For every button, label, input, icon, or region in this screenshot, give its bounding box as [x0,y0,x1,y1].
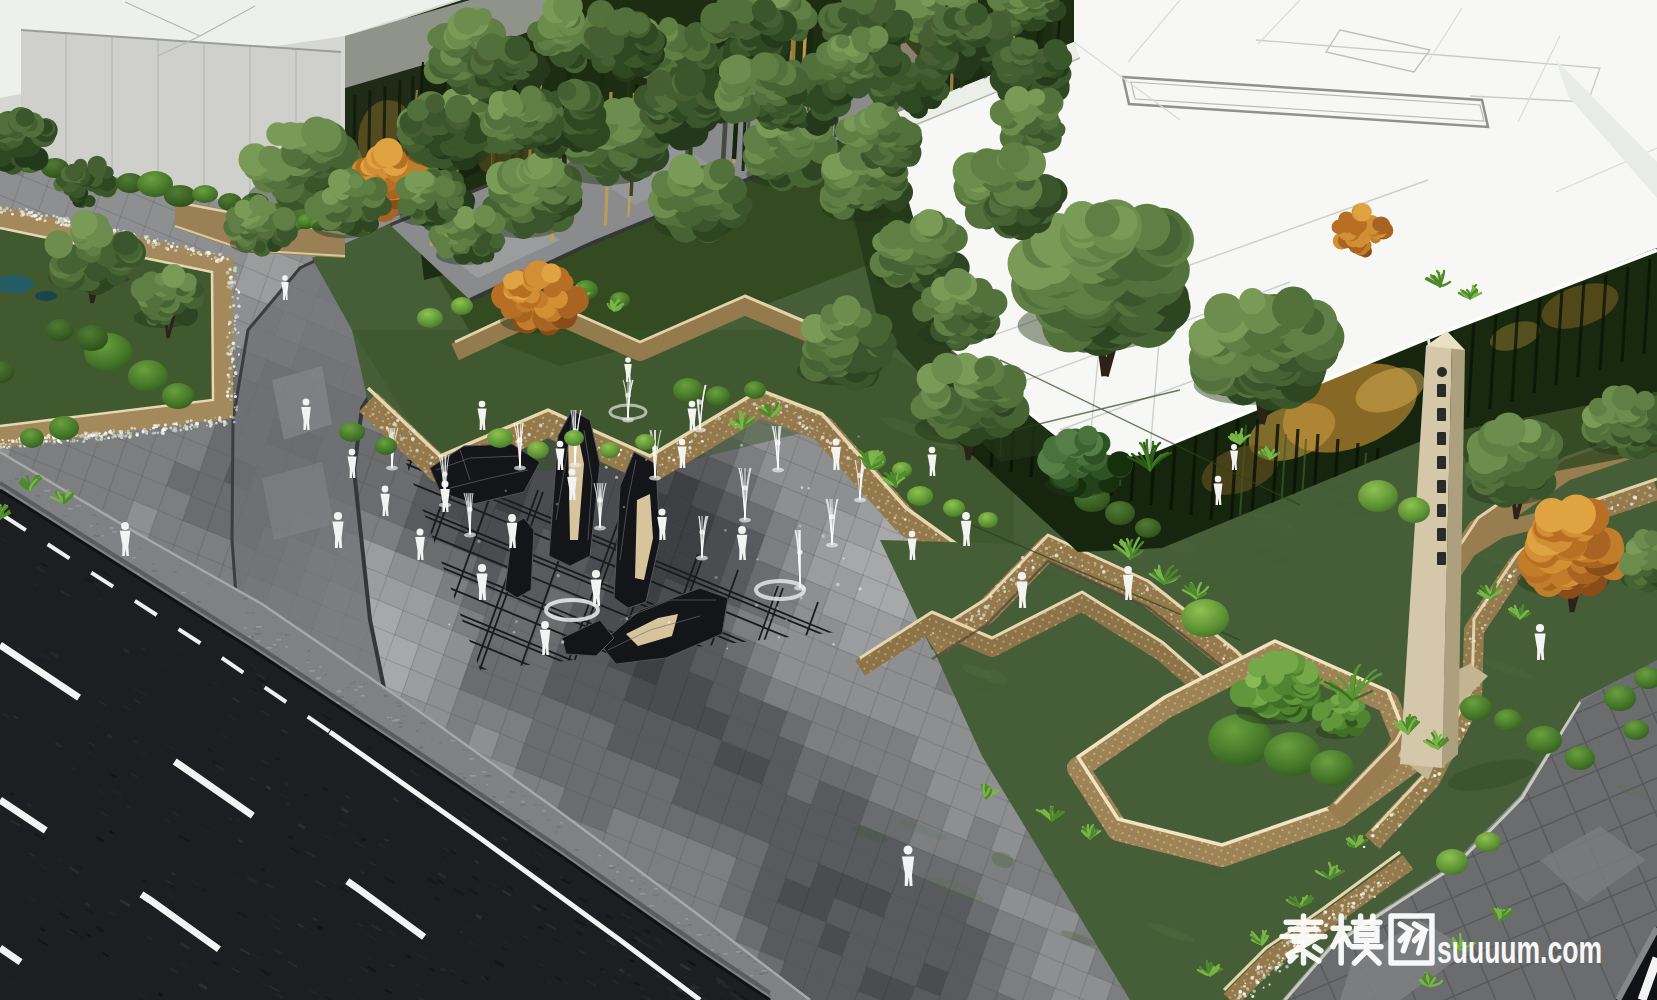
svg-text:suuuum.com: suuuum.com [1437,929,1602,971]
